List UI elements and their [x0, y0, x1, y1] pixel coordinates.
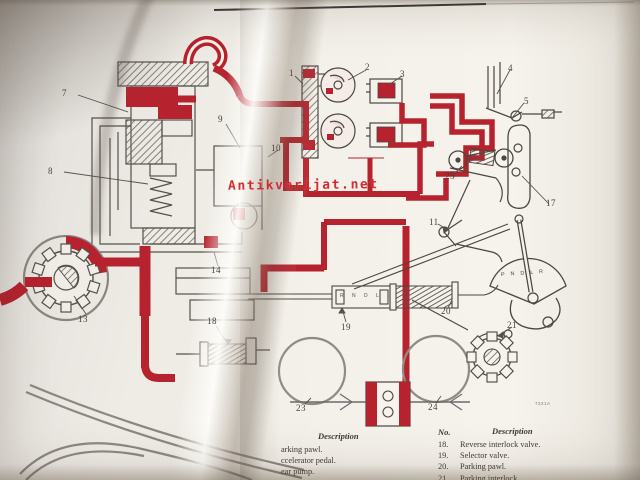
- legend-row-desc: Selector valve.: [460, 451, 509, 460]
- legend-left-description-header: Description: [318, 431, 359, 441]
- callout-17: 17: [546, 198, 556, 208]
- callout-8: 8: [48, 166, 53, 176]
- callout-3: 3: [400, 69, 405, 79]
- bottom-assembly: [279, 332, 517, 426]
- callout-10: 10: [271, 143, 281, 153]
- callout-4: 4: [508, 63, 513, 73]
- callout-18: 18: [207, 316, 217, 326]
- callout-24: 24: [428, 402, 438, 412]
- callout-20: 20: [441, 306, 451, 316]
- callout-13: 13: [78, 314, 88, 324]
- legend-right-description-header: Description: [492, 426, 533, 436]
- callout-2: 2: [365, 62, 370, 72]
- legend-row-desc: Reverse interlock valve.: [460, 440, 540, 449]
- figure-code: 7221A: [535, 401, 551, 406]
- callout-7: 7: [62, 88, 67, 98]
- selector-valve-letters: R N D L: [340, 293, 382, 299]
- legend-no-header: No.: [438, 427, 451, 437]
- callout-25: 25: [445, 171, 455, 181]
- photo-edge-top: [0, 0, 640, 6]
- callout-14: 14: [211, 265, 221, 275]
- callout-9: 9: [218, 114, 223, 124]
- callout-21: 21: [507, 320, 517, 330]
- callout-19: 19: [341, 322, 351, 332]
- callout-5: 5: [524, 96, 529, 106]
- callout-11: 11: [429, 217, 439, 227]
- callout-23: 23: [296, 403, 306, 413]
- legend-left-item: arking pawl.: [281, 445, 322, 454]
- watermark-text: Antikvarijat.net: [228, 177, 379, 194]
- book-photo: 7 8 9 10 13 14 18 1 2 3 4 5 25 17 11 19 …: [0, 0, 640, 480]
- linkage-cluster: [352, 62, 566, 342]
- photo-edge-bottom: [0, 464, 640, 480]
- legend-row-no: 18.: [438, 440, 448, 449]
- legend-row-no: 19.: [438, 451, 448, 460]
- callout-1: 1: [289, 68, 294, 78]
- photo-edge-right: [614, 0, 640, 480]
- corner-shadow: [0, 0, 220, 150]
